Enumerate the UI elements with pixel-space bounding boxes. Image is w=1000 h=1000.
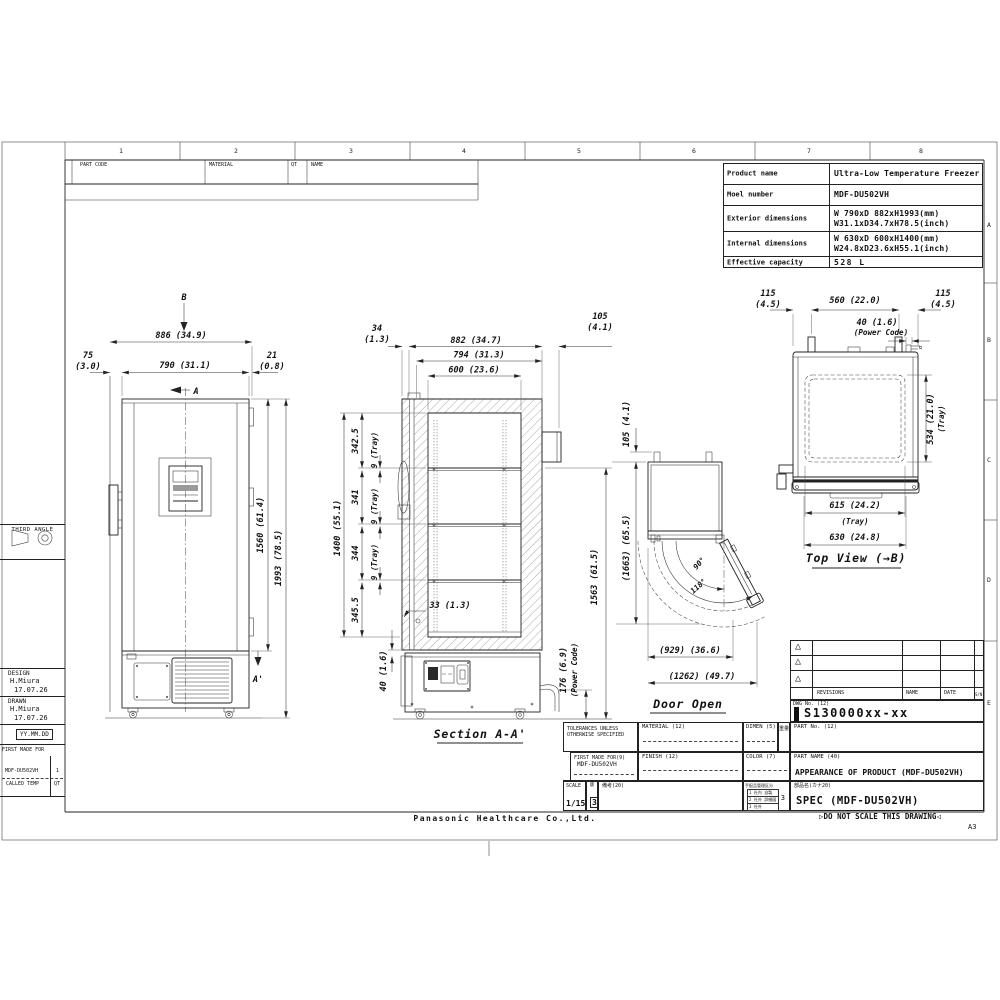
sheet-size-label: A3: [968, 823, 976, 831]
exterior-dims-label: Exterior dimensions: [727, 214, 807, 223]
dim-21: 21: [266, 351, 277, 361]
remarks-label: 備考(20): [602, 783, 742, 789]
first-made-for-label: FIRST MADE FOR: [2, 747, 65, 753]
section-view: 34 (1.3) 882 (34.7) 794 (31.3) 600 (23.6…: [333, 312, 613, 743]
dim-176: 176 (6.9): [559, 647, 569, 693]
top-view: 115 (4.5) 560 (22.0) 115 (4.5) 40 (1.6) …: [755, 289, 956, 568]
sheet-label: 版: [587, 782, 597, 788]
first-made-dash: [2, 778, 63, 779]
model-number-label-cell: Moel number: [723, 184, 830, 205]
capacity-label-cell: Effective capacity: [723, 256, 830, 268]
exterior-dims-inch: W31.1xD34.7xH78.5(inch): [834, 219, 949, 229]
material-label: MATERIAL (12): [642, 724, 742, 731]
dim-630: 630 (24.8): [829, 533, 880, 543]
company-name: Panasonic Healthcare Co.,Ltd.: [395, 814, 615, 823]
called-temp-label: CALLED TEMP: [6, 781, 39, 787]
title-first-made-value: MDF-DU502VH: [577, 761, 637, 768]
item-name-cell: 部品名(カナ20) SPEC (MDF-DU502VH): [790, 781, 984, 811]
front-arrow-b-label: B: [180, 293, 186, 303]
mgmt-row-2: 2 社外 詳細図: [748, 797, 778, 804]
dim-105-door: 105 (4.1): [622, 401, 632, 447]
dim-tray-3: 9 (Tray): [370, 544, 379, 580]
dim-75: 75: [83, 351, 93, 361]
tolerances-box: TOLERANCES UNLESS OTHERWISE SPECIFIED: [563, 722, 638, 752]
design-label: DESIGN: [8, 670, 65, 677]
dim-1400: 1400 (55.1): [333, 500, 343, 556]
revisions-header: REVISIONS: [817, 690, 844, 696]
mgmt-value: 3: [781, 794, 785, 802]
dim-534-tray: (Tray): [937, 405, 946, 432]
parts-band-qt: QT: [291, 162, 297, 168]
exterior-dims-label-cell: Exterior dimensions: [723, 205, 830, 231]
first-made-for-box: FIRST MADE FOR MDF-DU502VH 1 CALLED TEMP…: [0, 744, 65, 797]
dim-40: 40 (1.6): [379, 651, 389, 692]
mgmt-cell: 手配品管理区分 1 社内 自製 2 社外 詳細図 3 社外 3: [743, 781, 790, 811]
internal-dims-mm: W 630xD 600xH1400(mm): [834, 234, 939, 244]
revisions-table: △ △ △ REVISIONS NAME DATE S/N: [790, 640, 984, 700]
model-number-value-cell: MDF-DU502VH: [830, 184, 983, 205]
capacity-value-cell: 528 L: [830, 256, 983, 268]
zone-letter-c: C: [987, 456, 991, 464]
part-no-cell: PART No. (12): [790, 722, 984, 752]
zone-number-1: 1: [119, 147, 123, 155]
dim-600: 600 (23.6): [448, 366, 499, 376]
dim-34-inch: (1.3): [364, 335, 390, 345]
dim-1663: (1663) (65.5): [622, 515, 632, 582]
dim-1993: 1993 (78.5): [274, 530, 284, 586]
third-angle-box: THIRD ANGLE: [0, 524, 65, 560]
product-info-table: Product name Ultra-Low Temperature Freez…: [723, 163, 983, 268]
dim-882: 882 (34.7): [450, 336, 501, 346]
dim-615-tray: (Tray): [841, 517, 868, 526]
parts-band-material: MATERIAL: [209, 162, 233, 168]
dim-341: 341: [351, 489, 361, 505]
dim-75-inch: (3.0): [75, 362, 101, 372]
first-made-model: MDF-DU502VH: [5, 768, 38, 774]
tolerances-line2: OTHERWISE SPECIFIED: [567, 732, 637, 738]
revisions-date-header: DATE: [944, 690, 956, 696]
mgmt-row-3: 3 社外: [748, 804, 778, 810]
product-name-label: Product name: [727, 169, 778, 178]
dim-tray-1: 9 (Tray): [370, 432, 379, 468]
product-name-value-cell: Ultra-Low Temperature Freezer: [830, 163, 983, 184]
first-made-qty: 1: [56, 768, 59, 774]
dim-790: 790 (31.1): [159, 361, 210, 371]
dim-929: (929) (36.6): [659, 646, 720, 656]
dim-344: 344: [351, 545, 361, 561]
dim-1563: 1563 (61.5): [590, 549, 600, 605]
scale-label: SCALE: [566, 783, 585, 789]
top-view-title: Top View (→B): [806, 551, 906, 565]
drawing-sheet: B A A' 886 (34.9) 75 (3.0) 790 (31.1) 21…: [0, 0, 1000, 1000]
first-made-cell: FIRST MADE FOR(9) MDF-DU502VH: [570, 752, 638, 781]
zone-letter-b: B: [987, 336, 991, 344]
dimen-label: DIMEN (5): [746, 724, 777, 731]
dim-534: 534 (21.0): [926, 393, 936, 444]
zone-number-6: 6: [692, 147, 696, 155]
exterior-dims-mm: W 790xD 882xH1993(mm): [834, 209, 939, 219]
front-view: B A A' 886 (34.9) 75 (3.0) 790 (31.1) 21…: [75, 293, 290, 718]
dim-794: 794 (31.3): [453, 351, 504, 361]
scale-value: 1/15: [566, 799, 585, 808]
zone-number-8: 8: [919, 147, 923, 155]
revisions-sym-header: S/N: [975, 692, 982, 697]
front-arrow-a2-label: A': [252, 675, 263, 685]
zone-letter-d: D: [987, 576, 991, 584]
zone-number-7: 7: [807, 147, 811, 155]
parts-band-part-code: PART CODE: [80, 162, 107, 168]
zone-number-4: 4: [462, 147, 466, 155]
third-angle-symbol-icon: [0, 525, 65, 551]
item-name-value: SPEC (MDF-DU502VH): [796, 795, 919, 807]
technical-drawing-canvas: B A A' 886 (34.9) 75 (3.0) 790 (31.1) 21…: [0, 0, 1000, 1000]
part-name-label: PART NAME (40): [794, 754, 983, 761]
sheet-cell: 版 3: [586, 781, 598, 811]
dwg-no-value: S130000xx-xx: [804, 706, 909, 720]
zone-number-5: 5: [577, 147, 581, 155]
internal-dims-label-cell: Internal dimensions: [723, 231, 830, 256]
zone-letter-a: A: [987, 221, 991, 229]
material-cell: MATERIAL (12): [638, 722, 743, 752]
angle-90: 90°: [691, 555, 707, 571]
finish-label: FINISH (12): [642, 754, 742, 761]
model-number-value: MDF-DU502VH: [834, 190, 889, 200]
dwg-no-marker-icon: [794, 707, 799, 721]
internal-dims-label: Internal dimensions: [727, 240, 807, 249]
design-box: DESIGN H.Miura 17.07.26: [0, 668, 65, 696]
dim-40-top: 40 (1.6): [857, 318, 898, 328]
capacity-label: Effective capacity: [727, 258, 803, 267]
revisions-name-header: NAME: [906, 690, 918, 696]
date-format-box: YY.MM.DD: [0, 724, 65, 744]
parts-band-name: NAME: [311, 162, 323, 168]
design-date: 17.07.26: [14, 686, 65, 695]
part-name-cell: PART NAME (40) APPEARANCE OF PRODUCT (MD…: [790, 752, 984, 781]
color-label: COLOR (7): [746, 754, 789, 761]
weight-cell: 重量: [778, 722, 790, 752]
dim-105-inch: (4.1): [587, 323, 613, 333]
date-format: YY.MM.DD: [16, 729, 53, 740]
scale-cell: SCALE 1/15: [563, 781, 586, 811]
dim-1262: (1262) (49.7): [669, 672, 736, 682]
internal-dims-inch: W24.8xD23.6xH55.1(inch): [834, 244, 949, 254]
section-view-title: Section A-A': [434, 727, 527, 741]
dim-tray-2: 9 (Tray): [370, 488, 379, 524]
dim-33: 33 (1.3): [429, 601, 471, 611]
remarks-cell: 備考(20): [598, 781, 743, 811]
product-name-value: Ultra-Low Temperature Freezer: [834, 169, 979, 179]
dim-115-right-inch: (4.5): [930, 300, 956, 310]
first-made-divider: [50, 756, 51, 796]
exterior-dims-value-cell: W 790xD 882xH1993(mm) W31.1xD34.7xH78.5(…: [830, 205, 983, 231]
dim-1560: 1560 (61.4): [256, 497, 266, 553]
revision-triangle-icon: △: [795, 640, 801, 654]
door-open-view: 105 (4.1) (1663) (65.5) 90° 118° (929) (…: [612, 401, 764, 713]
drawn-box: DRAWN H.Miura 17.07.26: [0, 696, 65, 724]
dim-615: 615 (24.2): [829, 501, 880, 511]
called-temp-qt: QT: [54, 781, 60, 787]
dim-115-left: 115: [760, 289, 775, 299]
zone-number-3: 3: [349, 147, 353, 155]
weight-label: 重量: [779, 725, 789, 732]
mgmt-mini-table: 1 社内 自製 2 社外 詳細図 3 社外: [747, 789, 779, 811]
dim-342: 342.5: [351, 428, 361, 455]
dim-21-inch: (0.8): [259, 362, 285, 372]
do-not-scale-note: ▷DO NOT SCALE THIS DRAWING◁: [795, 812, 965, 821]
door-open-title: Door Open: [652, 697, 723, 711]
dim-40-power: (Power Code): [854, 328, 908, 337]
revision-triangle-icon: △: [795, 655, 801, 669]
dim-115-right: 115: [935, 289, 950, 299]
title-block: TOLERANCES UNLESS OTHERWISE SPECIFIED MA…: [563, 722, 984, 811]
angle-118: 118°: [689, 577, 708, 596]
do-not-scale-text: DO NOT SCALE THIS DRAWING: [824, 812, 937, 821]
color-cell: COLOR (7): [743, 752, 790, 781]
revision-triangle-icon: △: [795, 672, 801, 686]
design-name: H.Miura: [10, 677, 65, 686]
dim-886: 886 (34.9): [155, 331, 206, 341]
drawn-name: H.Miura: [10, 705, 65, 714]
dim-34: 34: [371, 324, 382, 334]
internal-dims-value-cell: W 630xD 600xH1400(mm) W24.8xD23.6xH55.1(…: [830, 231, 983, 256]
dim-560: 560 (22.0): [829, 296, 880, 306]
zone-number-2: 2: [234, 147, 238, 155]
part-name-value: APPEARANCE OF PRODUCT (MDF-DU502VH): [795, 768, 964, 777]
capacity-value: 528 L: [834, 258, 866, 268]
drawn-date: 17.07.26: [14, 714, 65, 723]
front-arrow-a-label: A: [192, 387, 198, 397]
dimen-cell: DIMEN (5): [743, 722, 778, 752]
product-name-label-cell: Product name: [723, 163, 830, 184]
dwg-no-box: DWG No. (12) S130000xx-xx: [790, 700, 984, 722]
item-name-label: 部品名(カナ20): [794, 783, 983, 789]
dim-345: 345.5: [351, 597, 361, 624]
no-scale-right-triangle-icon: ◁: [936, 812, 941, 821]
mgmt-row-1: 1 社内 自製: [748, 790, 778, 797]
model-number-label: Moel number: [727, 191, 773, 200]
part-no-label: PART No. (12): [794, 724, 983, 731]
zone-letter-e: E: [987, 699, 991, 707]
dim-176-power: (Power Code): [570, 643, 579, 697]
drawn-label: DRAWN: [8, 698, 65, 705]
finish-cell: FINISH (12): [638, 752, 743, 781]
dim-115-left-inch: (4.5): [755, 300, 781, 310]
dim-105: 105: [592, 312, 607, 322]
